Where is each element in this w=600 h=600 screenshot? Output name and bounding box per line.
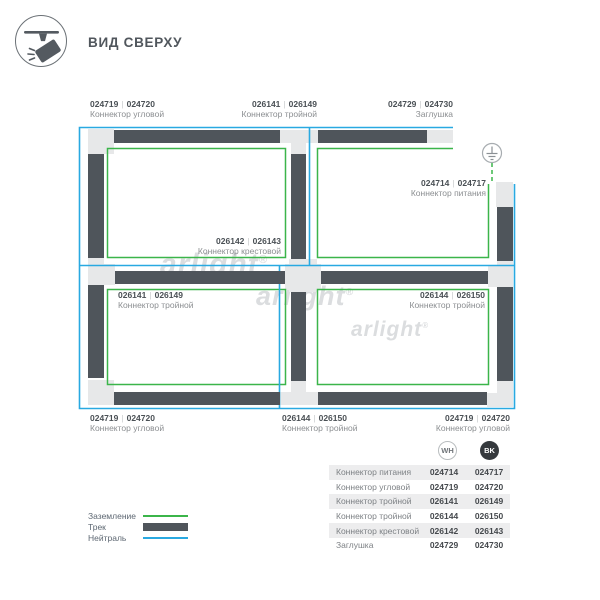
wh-code-cell: 024719 <box>420 482 468 492</box>
part-name: Коннектор угловой <box>436 424 510 434</box>
track-middle-upper <box>291 154 306 259</box>
label-tee-top-middle: 026141|026149 Коннектор тройной <box>242 100 318 119</box>
wh-code-cell: 026141 <box>420 496 468 506</box>
bk-code-cell: 024717 <box>468 467 510 477</box>
wh-code-cell: 024714 <box>420 467 468 477</box>
corner-connector-top-left <box>88 129 114 154</box>
label-tee-middle-right: 026144|026150 Коннектор тройной <box>410 291 486 310</box>
tee-connector-middle-left-arm <box>88 264 115 285</box>
part-name: Коннектор тройной <box>242 110 318 120</box>
track-bottom-left <box>114 392 280 405</box>
label-power-connector: 024714|024717 Коннектор питания <box>411 179 486 198</box>
track-right-upper <box>497 207 513 261</box>
tee-connector-top-middle-stem <box>291 130 306 154</box>
part-name: Коннектор питания <box>411 189 486 199</box>
ground-loop-top-right <box>318 149 489 258</box>
ground-line-swatch <box>143 515 188 517</box>
track-top-right <box>318 130 427 143</box>
grounding-symbol-icon <box>483 144 502 163</box>
bk-code-cell: 026143 <box>468 526 510 536</box>
table-row: Коннектор питания 024714 024717 <box>329 465 510 480</box>
legend: Заземление Трек Нейтраль <box>88 510 188 543</box>
label-cross-connector: 026142|026143 Коннектор крестовой <box>198 237 281 256</box>
cross-connector-stem <box>289 259 317 292</box>
tee-connector-middle-right-arm <box>488 266 513 287</box>
part-name: Коннектор угловой <box>90 424 164 434</box>
table-row: Коннектор тройной 026144 026150 <box>329 509 510 524</box>
track-top-left <box>114 130 280 143</box>
track-mid-h-right <box>321 271 488 284</box>
label-endcap-top-right: 024729|024730 Заглушка <box>388 100 453 119</box>
legend-row-track: Трек <box>88 521 188 532</box>
track-middle-lower <box>291 292 306 381</box>
color-badge-black: BK <box>480 441 499 460</box>
endcap-top-right <box>427 130 453 143</box>
part-name-cell: Коннектор угловой <box>329 482 420 492</box>
legend-row-neutral: Нейтраль <box>88 532 188 543</box>
track-left-upper <box>88 154 104 258</box>
part-name: Коннектор угловой <box>90 110 164 120</box>
part-name-cell: Коннектор крестовой <box>329 526 420 536</box>
part-name: Коннектор тройной <box>282 424 358 434</box>
parts-table: Коннектор питания 024714 024717 Коннекто… <box>329 465 510 553</box>
table-row: Заглушка 024729 024730 <box>329 538 510 553</box>
label-corner-bottom-right: 024719|024720 Коннектор угловой <box>436 414 510 433</box>
color-badge-white: WH <box>438 441 457 460</box>
table-row: Коннектор крестовой 026142 026143 <box>329 523 510 538</box>
part-name: Коннектор крестовой <box>198 247 281 257</box>
part-name: Коннектор тройной <box>118 301 194 311</box>
part-name-cell: Заглушка <box>329 540 420 550</box>
label-tee-bottom-middle: 026144|026150 Коннектор тройной <box>282 414 358 433</box>
label-tee-middle-left: 026141|026149 Коннектор тройной <box>118 291 194 310</box>
part-name-cell: Коннектор тройной <box>329 511 420 521</box>
table-row: Коннектор угловой 024719 024720 <box>329 480 510 495</box>
legend-label: Нейтраль <box>88 533 143 543</box>
part-name: Коннектор тройной <box>410 301 486 311</box>
power-connector-block <box>496 182 513 207</box>
track-right-lower <box>497 287 513 381</box>
bk-code-cell: 026150 <box>468 511 510 521</box>
part-name-cell: Коннектор тройной <box>329 496 420 506</box>
part-name: Заглушка <box>388 110 453 120</box>
bk-code-cell: 024720 <box>468 482 510 492</box>
table-row: Коннектор тройной 026141 026149 <box>329 494 510 509</box>
wh-code-cell: 026144 <box>420 511 468 521</box>
track-bottom-right <box>318 392 487 405</box>
legend-label: Трек <box>88 522 143 532</box>
track-swatch <box>143 523 188 531</box>
label-corner-top-left: 024719|024720 Коннектор угловой <box>90 100 164 119</box>
tee-connector-bottom-middle-stem <box>291 381 306 405</box>
bk-code-cell: 026149 <box>468 496 510 506</box>
corner-connector-bottom-right-stem <box>497 381 513 407</box>
bk-code-cell: 024730 <box>468 540 510 550</box>
label-corner-bottom-left: 024719|024720 Коннектор угловой <box>90 414 164 433</box>
legend-row-ground: Заземление <box>88 510 188 521</box>
track-left-lower <box>88 285 104 378</box>
wh-code-cell: 024729 <box>420 540 468 550</box>
wh-code-cell: 026142 <box>420 526 468 536</box>
legend-label: Заземление <box>88 511 143 521</box>
neutral-line-swatch <box>143 537 188 539</box>
track-mid-h-left <box>115 271 285 284</box>
part-name-cell: Коннектор питания <box>329 467 420 477</box>
